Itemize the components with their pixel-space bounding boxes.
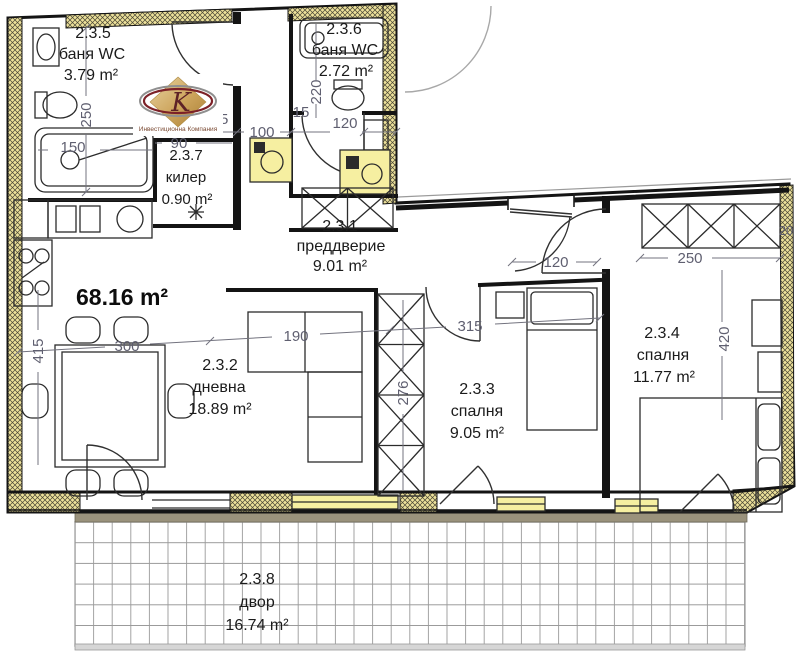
dim-wall-b: 15	[293, 104, 310, 121]
walls	[8, 16, 794, 510]
dim-sofa-width: 190	[283, 328, 308, 345]
total-area-label: 68.16 m²	[76, 284, 168, 310]
toilet	[35, 92, 77, 118]
room-237-name: килер	[166, 169, 206, 186]
room-235-id: 2.3.5	[75, 25, 111, 42]
terrace-edge	[75, 644, 745, 650]
nightstand-2	[752, 300, 782, 346]
room-231-id: 2.3.1	[322, 218, 358, 235]
dim-bath1-height: 250	[78, 102, 95, 127]
terrace	[75, 522, 745, 650]
room-238-name: двор	[239, 594, 275, 611]
nightstand-1	[496, 292, 524, 318]
floor-plan: 250 150 90 15 100 15 120 220 300 190 315…	[0, 0, 800, 654]
room-235-area: 3.79 m²	[64, 67, 119, 84]
dim-living-width: 300	[114, 338, 139, 355]
dimensions: 250 150 90 15 100 15 120 220 300 190 315…	[14, 24, 793, 490]
room-237-id: 2.3.7	[169, 147, 202, 164]
room-231-name: преддверие	[297, 238, 386, 255]
room-232-name: дневна	[192, 379, 245, 396]
dim-niche: 100	[249, 124, 274, 141]
dim-bedroom2-width: 250	[677, 250, 702, 267]
room-235-name: баня WC	[59, 46, 125, 63]
room-233-id: 2.3.3	[459, 381, 495, 398]
room-231-area: 9.01 m²	[313, 258, 368, 275]
washing-machine	[250, 138, 292, 182]
dim-hall-width: 315	[457, 318, 482, 335]
sink	[33, 28, 59, 66]
kitchen-counter	[14, 200, 152, 238]
room-233-area: 9.05 m²	[450, 425, 505, 442]
apartment-outline	[8, 4, 794, 512]
dim-entry-door: 120	[543, 254, 568, 271]
room-236-id: 2.3.6	[326, 21, 362, 38]
dim-bedroom2-height: 420	[716, 326, 733, 351]
room-236-area: 2.72 m²	[319, 63, 374, 80]
company-logo: K Инвестиционна Компания	[133, 74, 223, 136]
room-238-area: 16.74 m²	[225, 617, 289, 634]
room-238-id: 2.3.8	[239, 571, 275, 588]
room-232-id: 2.3.2	[202, 357, 238, 374]
room-233-name: спалня	[451, 403, 503, 420]
furniture	[14, 18, 782, 512]
dim-wardrobe-height: 276	[395, 380, 412, 405]
bathtub	[35, 128, 153, 192]
room-234-name: спалня	[637, 347, 689, 364]
shelf-2	[758, 352, 782, 392]
room-234-id: 2.3.4	[644, 325, 680, 342]
room-232-area: 18.89 m²	[188, 401, 252, 418]
floor-plan-svg: 250 150 90 15 100 15 120 220 300 190 315…	[0, 0, 800, 654]
room-237-area: 0.90 m²	[162, 191, 213, 208]
room-234-area: 11.77 m²	[633, 369, 696, 386]
dining-table	[55, 345, 165, 467]
dim-bath2-width: 120	[332, 115, 357, 132]
bed-single	[527, 288, 597, 430]
wardrobe-bedroom2	[642, 204, 780, 248]
sink-2	[332, 80, 364, 110]
room-236-name: баня WC	[312, 42, 378, 59]
chairs	[22, 317, 194, 496]
hatched-walls	[8, 4, 794, 512]
dim-bath2-height: 220	[308, 79, 325, 104]
dim-living-height: 415	[30, 338, 47, 363]
dim-edge: 20	[779, 223, 793, 238]
bedroom1-terrace-door	[440, 466, 494, 504]
logo-caption: Инвестиционна Компания	[139, 126, 218, 133]
logo-monogram: K	[170, 88, 192, 118]
terrace-grid	[75, 522, 745, 646]
dim-bathtub: 150	[60, 139, 85, 156]
neighbor-door-arc	[405, 6, 491, 92]
